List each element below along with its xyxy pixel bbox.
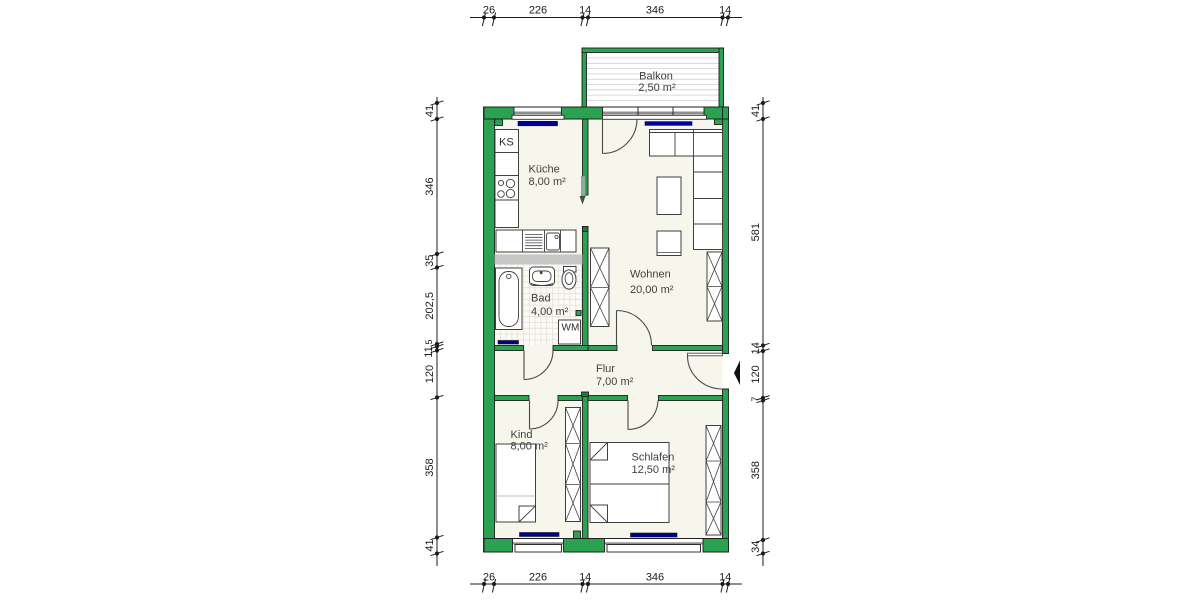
svg-text:Schlafen: Schlafen (632, 452, 675, 464)
svg-text:2,50 m²: 2,50 m² (638, 82, 676, 94)
svg-text:226: 226 (529, 5, 547, 17)
svg-text:Balkon: Balkon (639, 71, 673, 83)
svg-text:14: 14 (719, 572, 731, 584)
svg-text:358: 358 (424, 458, 436, 476)
svg-text:Kind: Kind (511, 429, 533, 441)
svg-text:26: 26 (483, 572, 495, 584)
svg-text:346: 346 (424, 177, 436, 195)
svg-text:5: 5 (424, 339, 434, 344)
svg-text:14: 14 (750, 342, 762, 354)
svg-text:120: 120 (424, 365, 436, 383)
svg-text:226: 226 (529, 572, 547, 584)
svg-text:581: 581 (750, 223, 762, 241)
svg-text:7,00 m²: 7,00 m² (596, 376, 634, 388)
svg-text:11: 11 (423, 346, 435, 357)
svg-text:346: 346 (646, 572, 664, 584)
svg-text:41: 41 (424, 539, 436, 551)
svg-text:202,5: 202,5 (424, 292, 436, 320)
svg-text:8,00 m²: 8,00 m² (511, 441, 549, 453)
svg-text:120: 120 (750, 365, 762, 383)
svg-text:8,00 m²: 8,00 m² (529, 176, 567, 188)
svg-text:358: 358 (750, 461, 762, 479)
svg-text:Wohnen: Wohnen (630, 269, 671, 281)
svg-text:12,50 m²: 12,50 m² (632, 464, 676, 476)
svg-text:34: 34 (750, 541, 762, 553)
svg-text:WM: WM (562, 323, 580, 334)
svg-text:Flur: Flur (596, 363, 615, 375)
svg-text:Bad: Bad (531, 293, 551, 305)
svg-text:41: 41 (424, 105, 436, 117)
svg-text:7: 7 (750, 397, 760, 402)
svg-text:14: 14 (719, 5, 731, 17)
svg-text:26: 26 (483, 5, 495, 17)
svg-text:KS: KS (499, 137, 514, 149)
svg-text:Küche: Küche (529, 164, 560, 176)
svg-text:346: 346 (646, 5, 664, 17)
svg-text:4,00 m²: 4,00 m² (531, 306, 569, 318)
svg-text:35: 35 (424, 255, 436, 267)
svg-text:20,00 m²: 20,00 m² (630, 284, 674, 296)
svg-text:41: 41 (750, 105, 762, 117)
svg-text:14: 14 (579, 5, 591, 17)
svg-text:14: 14 (579, 572, 591, 584)
